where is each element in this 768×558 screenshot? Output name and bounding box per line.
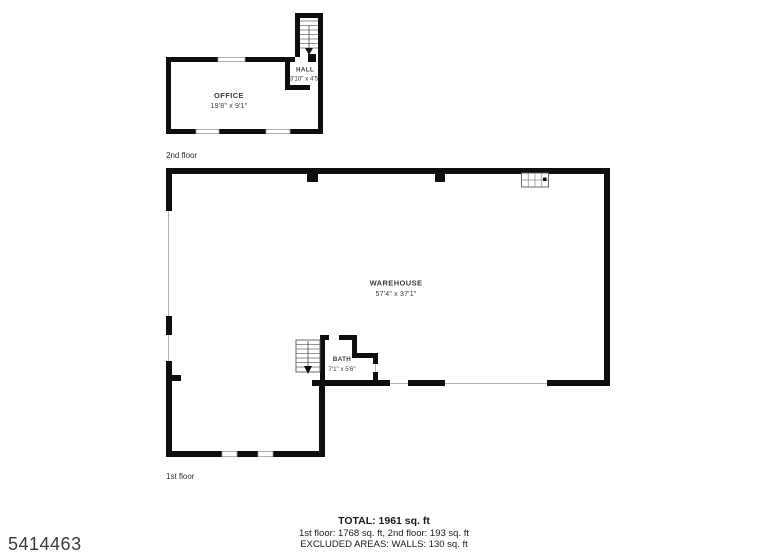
room-label-bath: BATH — [333, 356, 351, 363]
wall-segment — [295, 13, 300, 57]
wall-segment — [290, 129, 323, 134]
stairs-symbol — [300, 21, 318, 55]
wall-segment — [285, 85, 310, 90]
first-floor-label: 1st floor — [166, 472, 195, 481]
wall-segment — [373, 372, 378, 380]
wall-post — [308, 54, 316, 62]
wall-segment — [166, 129, 196, 134]
room-dims-bath: 7'1" x 5'6" — [328, 366, 355, 373]
wall-segment — [373, 353, 378, 364]
window-symbol — [222, 452, 237, 457]
room-label-hall: HALL — [296, 67, 314, 74]
wall-post — [435, 174, 445, 182]
room-dims-office: 19'8" x 9'1" — [211, 103, 248, 110]
window-symbol — [196, 130, 219, 134]
wall-segment — [318, 13, 323, 134]
wall-segment — [166, 451, 222, 457]
grid-symbol — [522, 173, 549, 187]
wall-segment — [604, 168, 610, 386]
window-symbol — [218, 58, 245, 62]
wall-segment — [237, 451, 258, 457]
excluded-areas-text: EXCLUDED AREAS: WALLS: 130 sq. ft — [0, 539, 768, 551]
window-symbol — [266, 130, 290, 134]
wall-segment — [166, 57, 171, 134]
total-area-text: TOTAL: 1961 sq. ft — [0, 516, 768, 528]
wall-segment — [273, 451, 325, 457]
wall-segment — [166, 316, 172, 335]
wall-segment — [166, 168, 172, 211]
wall-segment — [166, 57, 218, 62]
room-label-office: OFFICE — [214, 91, 244, 100]
room-dims-warehouse: 57'4" x 37'1" — [376, 291, 417, 298]
floor-areas-text: 1st floor: 1768 sq. ft, 2nd floor: 193 s… — [0, 528, 768, 540]
first-floor-plan: WAREHOUSE 57'4" x 37'1" BATH 7'1" x 5'6"… — [166, 168, 610, 481]
wall-segment — [219, 129, 266, 134]
stair-arrow-icon — [305, 48, 313, 55]
wall-segment — [320, 335, 329, 340]
grid-dot — [543, 178, 547, 182]
wall-segment — [320, 335, 325, 380]
wall-segment — [547, 380, 610, 386]
wall-stub — [170, 375, 181, 381]
area-summary: TOTAL: 1961 sq. ft 1st floor: 1768 sq. f… — [0, 516, 768, 551]
wall-segment — [408, 380, 445, 386]
second-floor-plan: OFFICE 19'8" x 9'1" HALL 3'10" x 4'5" 2n… — [166, 13, 323, 160]
floor-plan-page: OFFICE 19'8" x 9'1" HALL 3'10" x 4'5" 2n… — [0, 0, 768, 558]
stairs-symbol — [296, 340, 320, 374]
listing-number: 5414463 — [8, 535, 82, 553]
wall-post — [307, 174, 318, 182]
room-dims-hall: 3'10" x 4'5" — [290, 76, 321, 83]
floor-plan-canvas: OFFICE 19'8" x 9'1" HALL 3'10" x 4'5" 2n… — [0, 0, 768, 558]
second-floor-label: 2nd floor — [166, 151, 197, 160]
window-symbol — [258, 452, 273, 457]
wall-segment — [319, 386, 325, 457]
room-label-warehouse: WAREHOUSE — [370, 279, 423, 288]
wall-segment — [312, 380, 390, 386]
